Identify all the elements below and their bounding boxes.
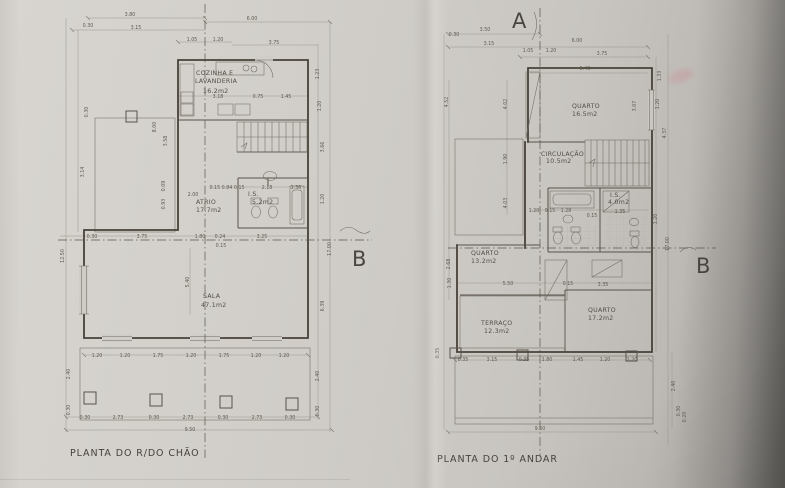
photographed-plan-sheet: 3.800.303.156.001.051.203.753.180.751.45… [0,0,785,488]
room-label: LAVANDERIA [195,78,238,85]
dimension-label: 17.00 [665,237,671,251]
roof-hatch-lower [455,356,653,424]
room-label: 10.5m2 [546,158,572,165]
room-label: COZINHA E [196,70,233,77]
room-label: 13.2m2 [471,258,497,265]
dimension-label: 1.35 [615,209,626,215]
dimension-label: 1.20 [653,214,659,225]
dimension-label: 1.05 [187,37,198,43]
dimension-label: 3.15 [484,41,495,47]
dimension-label: 9.50 [535,426,546,432]
dimension-label: 1.20 [627,357,638,363]
dimension-label: 0.93 [161,199,167,210]
dimension-label: 0.30 [149,415,160,421]
room-label: ATRIO [196,199,216,206]
floor-plans-drawing: 3.800.303.156.001.051.203.753.180.751.45… [0,0,785,488]
dimension-label: 1.20 [186,353,197,359]
dimension-label: 3.25 [257,234,268,240]
patio-tiles [95,118,175,232]
dimension-label: 0.15 [545,208,556,214]
dimension-label: 3.14 [80,167,86,178]
room-label: QUARTO [588,307,616,314]
dimension-label: 1.20 [655,99,661,110]
dimension-label: 1.28 [561,208,572,214]
room-label: SALA [203,293,221,300]
dimension-label: 1.20 [320,194,326,205]
dimension-label: 1.90 [503,154,509,165]
room-label: QUARTO [471,250,499,257]
room-label: 16.2m2 [203,88,229,95]
dimension-label: 0.30 [66,405,72,416]
dimension-label: 3.80 [125,12,136,18]
bathrooms-fixtures [548,188,652,252]
dimension-label: 3.15 [131,25,142,31]
dimension-label: 4.52 [444,97,450,108]
section-marker-b-left: B [352,247,366,271]
room-label: I.S. [248,191,259,198]
dimension-label: 3.75 [137,234,148,240]
dimension-label: 2.73 [113,415,124,421]
dimension-label: 1.45 [573,357,584,363]
dimension-label: 1.30 [447,278,453,289]
balcony-tiles [460,296,565,348]
dimension-label: 6.00 [247,16,258,22]
dimension-label: 5.50 [503,281,514,287]
dimension-label: 6.00 [572,38,583,44]
room-label: I.S. [610,192,621,199]
dimension-label: 1.80 [542,357,553,363]
dimension-label: 0.30 [285,415,296,421]
dimension-label: 0.30 [83,23,94,29]
dimension-label: 1.45 [281,94,292,100]
staircase-upper [585,140,649,186]
room-label: 12.3m2 [484,328,510,335]
roof-hatch-upper [455,139,523,235]
dimension-label: 0.30 [84,107,90,118]
section-marker-b-right: B [696,254,710,278]
dimension-label: 1.20 [120,353,131,359]
dimension-label: 1.75 [219,353,230,359]
dimension-label: 0.30 [87,234,98,240]
dimension-label: 1.80 [195,234,206,240]
first-floor-plan: 3.500.303.156.001.051.203.755.401.331.20… [435,8,716,465]
dimension-label: 1.20 [317,101,323,112]
dimension-label: 17.00 [327,242,333,256]
dimension-label: 2.18 [262,185,273,191]
dimension-label: 3.75 [269,40,280,46]
dimension-label: 0.20 [682,412,688,423]
ground-floor-title: PLANTA DO R/DO CHÃO [70,448,200,459]
room-label: 4.0m2 [608,199,629,206]
dimension-label: 1.20 [600,357,611,363]
dimension-label: 2.00 [188,192,199,198]
section-marker-a: A [512,9,527,33]
dimension-label: 1.20 [529,208,540,214]
dimension-label: 0.15 0.84 0.15 [209,185,244,191]
dimension-label: 0.35 [519,357,530,363]
ground-floor-plan: 3.800.303.156.001.051.203.753.180.751.45… [58,4,372,459]
dimension-label: 0.09 [161,181,167,192]
dimension-label: 1.20 [546,48,557,54]
dimension-label: 1.36 [291,185,302,191]
room-label: TERRAÇO [480,320,512,327]
dimension-label: 1.33 [657,71,663,82]
dimension-label: 0.35 [435,348,441,359]
room-label: 5.2m2 [252,199,273,206]
dimension-label: 3.07 [632,101,638,112]
dimension-label: 0.30 [315,406,321,417]
dimension-label: 2.40 [671,381,677,392]
dimension-label: 1.20 [213,37,224,43]
room-label: CIRCULAÇÃO [541,149,584,158]
dimension-label: 1.20 [92,353,103,359]
staircase [237,122,307,152]
dimension-label: 4.03 [503,198,509,209]
dimension-label: 3.66 [320,142,326,153]
room-label: 16.5m2 [572,111,598,118]
dimension-label: 2.40 [315,371,321,382]
dimension-label: 5.40 [580,66,591,72]
dimension-label: 3.75 [597,51,608,57]
dimension-label: 3.15 [487,357,498,363]
dimension-label: 3.35 [598,282,609,288]
room-label: 17.7m2 [196,207,222,214]
dimension-label: 1.23 [315,69,321,80]
room-label: QUARTO [572,103,600,110]
dimension-label: 0.75 [253,94,264,100]
room-label: 47.1m2 [201,302,227,309]
dimension-label: 12.50 [60,249,66,263]
dimension-label: 0.15 [216,243,227,249]
dimension-label: 0.30 [80,415,91,421]
dimension-label: 5.40 [185,277,191,288]
dimension-label: 9.50 [185,427,196,433]
dimension-label: 1.20 [279,353,290,359]
dimension-label: 0.30 [218,415,229,421]
dimension-label: 4.37 [662,128,668,139]
dimension-label: 1.75 [153,353,164,359]
dimension-label: 4.02 [503,99,509,110]
dimension-label: 8.00 [152,122,158,133]
dimension-label: 1.05 [523,48,534,54]
dimension-label: 2.68 [446,259,452,270]
dimension-label: 0.30 [676,406,682,417]
dimension-label: 2.73 [252,415,263,421]
dimension-label: 0.30 [449,32,460,38]
dimension-label: 0.24 [215,234,226,240]
dimension-label: 1.20 [251,353,262,359]
dimension-label: 0.15 [587,213,598,219]
dimension-label: 3.58 [163,136,169,147]
dimension-label: 6.39 [320,301,326,312]
dimension-label: 0.35 [458,357,469,363]
first-floor-title: PLANTA DO 1º ANDAR [437,454,558,465]
dimension-label: 2.73 [183,415,194,421]
dimension-label: 2.40 [66,369,72,380]
bathroom-fixtures [251,172,304,225]
room-label: 17.2m2 [588,315,614,322]
dimension-label: 0.15 [563,281,574,287]
dimension-label: 3.50 [480,27,491,33]
